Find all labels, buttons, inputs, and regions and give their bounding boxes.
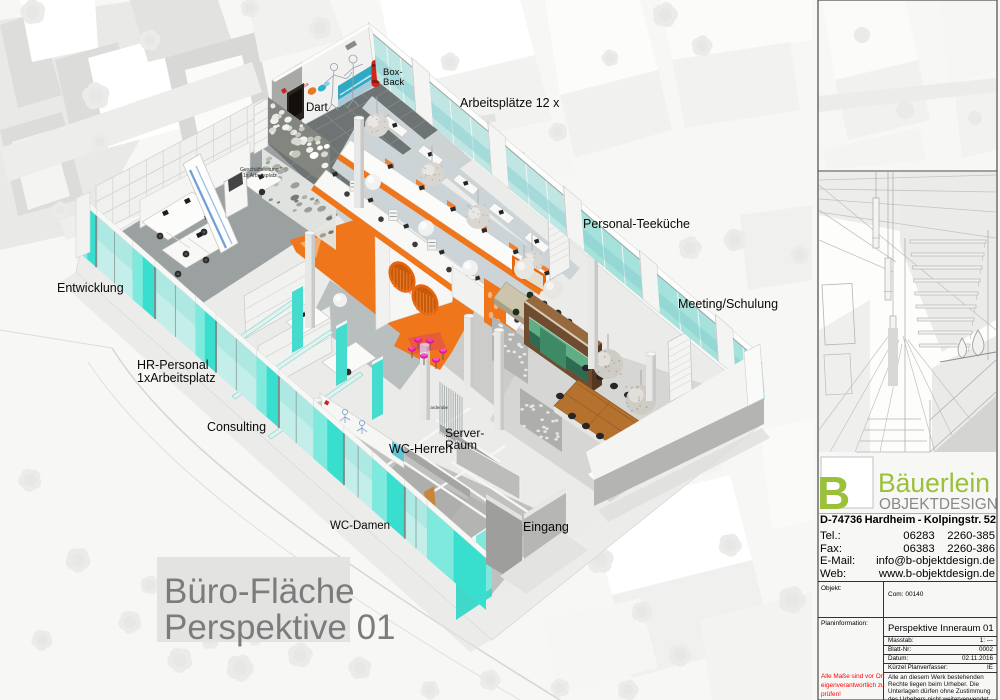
svg-text:Arbeitsplätze 12 x: Arbeitsplätze 12 x [460, 96, 560, 110]
svg-text:Büro-Fläche: Büro-Fläche [164, 572, 355, 611]
svg-text:Dart: Dart [306, 102, 329, 114]
svg-text:Meeting/Schulung: Meeting/Schulung [678, 297, 778, 311]
svg-text:OBJEKTDESIGN: OBJEKTDESIGN [879, 496, 998, 513]
svg-text:Perspektive 01: Perspektive 01 [164, 608, 396, 647]
svg-text:B: B [817, 467, 850, 519]
svg-text:Garderobe: Garderobe [427, 405, 449, 410]
svg-text:1x Arbeitsplatz: 1x Arbeitsplatz [243, 173, 277, 179]
svg-text:Consulting: Consulting [207, 420, 266, 434]
svg-text:Entwicklung: Entwicklung [57, 281, 124, 295]
svg-text:WC-Herren: WC-Herren [389, 442, 452, 456]
svg-text:Back: Back [383, 77, 404, 88]
svg-text:Bäuerlein: Bäuerlein [878, 468, 990, 498]
svg-text:Eingang: Eingang [523, 520, 569, 534]
svg-text:Raum: Raum [445, 438, 477, 452]
svg-text:1xArbeitsplatz: 1xArbeitsplatz [137, 371, 216, 385]
svg-text:HR-Personal: HR-Personal [137, 358, 209, 372]
svg-text:Personal-Teeküche: Personal-Teeküche [583, 217, 690, 231]
svg-text:WC-Damen: WC-Damen [330, 520, 390, 532]
